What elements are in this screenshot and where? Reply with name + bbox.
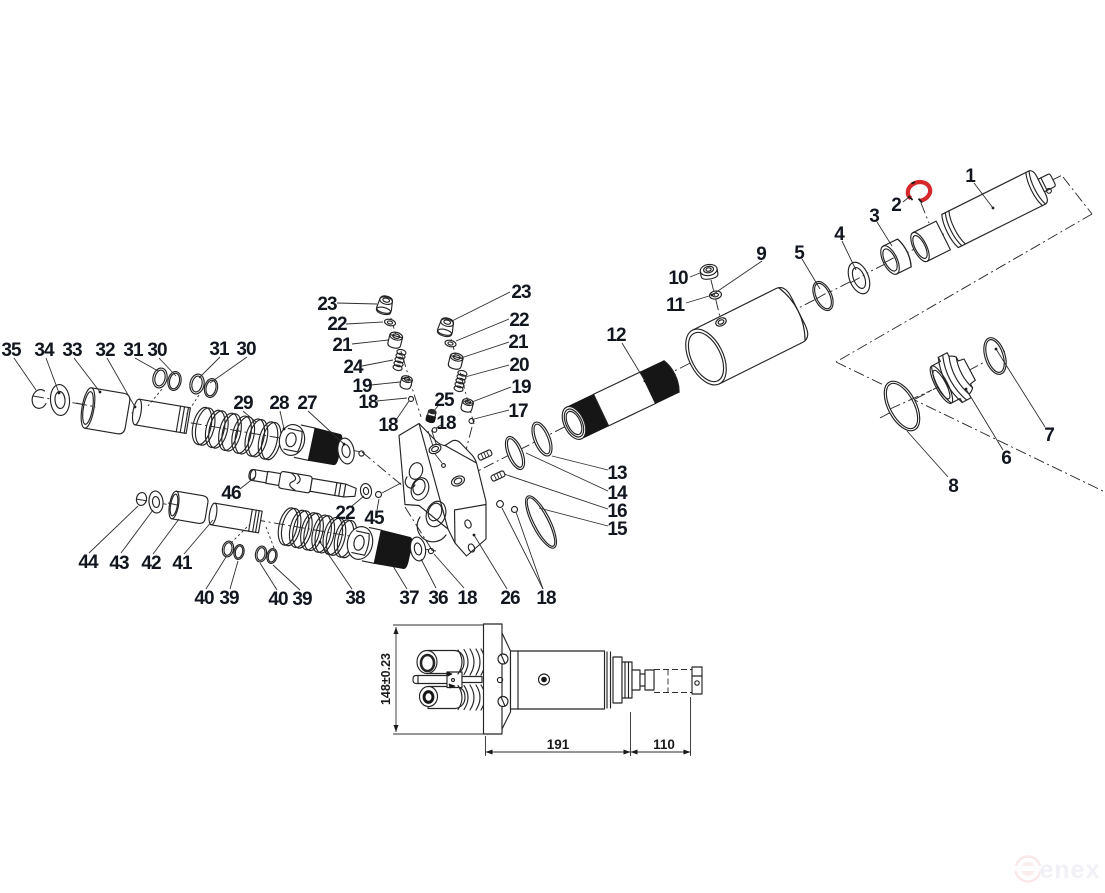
svg-text:2: 2 — [891, 195, 901, 216]
svg-text:32: 32 — [95, 340, 115, 361]
svg-text:34: 34 — [34, 340, 55, 361]
svg-text:28: 28 — [269, 393, 289, 414]
svg-text:25: 25 — [434, 390, 455, 411]
svg-text:5: 5 — [794, 243, 805, 264]
svg-text:11: 11 — [666, 295, 686, 316]
svg-text:35: 35 — [1, 340, 22, 361]
svg-text:30: 30 — [236, 339, 256, 360]
svg-text:21: 21 — [508, 332, 529, 353]
svg-text:7: 7 — [1044, 425, 1054, 446]
svg-text:17: 17 — [508, 401, 528, 422]
svg-text:6: 6 — [1001, 448, 1011, 469]
svg-text:18: 18 — [536, 588, 556, 609]
svg-text:30: 30 — [147, 340, 167, 361]
svg-text:4: 4 — [834, 224, 845, 245]
svg-text:37: 37 — [399, 588, 419, 609]
svg-text:24: 24 — [343, 357, 364, 378]
svg-text:12: 12 — [606, 325, 626, 346]
svg-text:8: 8 — [948, 476, 958, 497]
svg-text:44: 44 — [78, 552, 99, 573]
svg-text:3: 3 — [869, 206, 879, 227]
svg-text:31: 31 — [123, 340, 144, 361]
svg-text:29: 29 — [233, 393, 253, 414]
svg-text:19: 19 — [511, 377, 531, 398]
svg-text:148±0.23: 148±0.23 — [379, 653, 393, 705]
svg-text:22: 22 — [509, 310, 529, 331]
svg-text:42: 42 — [141, 553, 161, 574]
svg-text:15: 15 — [607, 519, 628, 540]
svg-text:39: 39 — [292, 589, 312, 610]
svg-text:23: 23 — [317, 294, 337, 315]
svg-text:1: 1 — [965, 166, 976, 187]
svg-text:43: 43 — [109, 553, 129, 574]
svg-text:22: 22 — [327, 314, 347, 335]
svg-text:26: 26 — [500, 588, 520, 609]
svg-text:40: 40 — [194, 588, 214, 609]
svg-text:22: 22 — [335, 503, 355, 524]
svg-text:21: 21 — [332, 335, 353, 356]
svg-text:10: 10 — [668, 268, 688, 289]
svg-text:9: 9 — [756, 244, 766, 265]
svg-text:18: 18 — [436, 413, 456, 434]
svg-text:39: 39 — [219, 588, 239, 609]
svg-text:36: 36 — [428, 588, 448, 609]
svg-text:13: 13 — [607, 463, 627, 484]
svg-text:31: 31 — [209, 339, 230, 360]
svg-text:191: 191 — [547, 737, 570, 752]
svg-text:enex: enex — [1040, 856, 1101, 884]
svg-text:38: 38 — [345, 588, 365, 609]
svg-text:20: 20 — [509, 355, 529, 376]
svg-text:27: 27 — [297, 393, 317, 414]
svg-text:18: 18 — [358, 392, 378, 413]
svg-text:18: 18 — [378, 415, 398, 436]
svg-text:18: 18 — [457, 588, 477, 609]
svg-text:45: 45 — [364, 508, 385, 529]
svg-text:41: 41 — [172, 553, 193, 574]
svg-text:40: 40 — [268, 589, 288, 610]
svg-text:46: 46 — [221, 483, 241, 504]
svg-text:110: 110 — [653, 737, 675, 752]
svg-text:33: 33 — [62, 340, 82, 361]
svg-text:23: 23 — [511, 282, 531, 303]
